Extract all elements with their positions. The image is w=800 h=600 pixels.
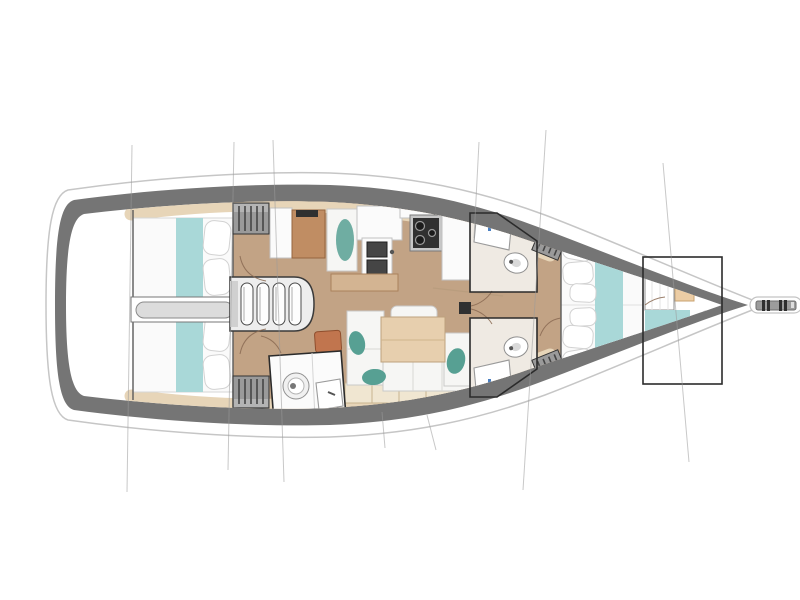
nav-seat-cushion [336, 219, 354, 261]
boat-floorplan-diagram [0, 0, 800, 600]
stove-burner [416, 222, 425, 231]
galley-faucet [390, 250, 394, 254]
sink-basin [367, 242, 387, 257]
pillow [570, 283, 597, 302]
pillow [202, 220, 231, 257]
pillow [570, 307, 597, 326]
step-tread [257, 283, 269, 325]
boat-floorplan-page [0, 0, 800, 600]
nav-cabinet [270, 208, 292, 258]
galley-counter-left [357, 206, 402, 240]
aft-port-berth-runner [176, 218, 203, 298]
bathroom-sink [316, 379, 343, 410]
ottoman [314, 330, 341, 353]
pillow [202, 258, 232, 297]
stove-burner [416, 236, 425, 245]
chart-table-instruments [296, 210, 318, 217]
chart-table [292, 210, 325, 258]
aft-starboard-berth-runner [176, 312, 203, 392]
bowsprit [750, 297, 800, 313]
aft-port-cabin [133, 218, 233, 298]
mast-post [459, 302, 471, 314]
pillow [562, 261, 594, 286]
galley-bar [331, 274, 398, 291]
step-tread [289, 283, 301, 325]
pillow [562, 325, 594, 350]
sink-basin [367, 260, 387, 275]
pillow [202, 354, 231, 391]
companionway-steps [230, 277, 314, 331]
interior-layout [131, 192, 719, 422]
hanging-locker [233, 203, 269, 234]
engine-compartment [131, 297, 233, 322]
step-tread [241, 283, 253, 325]
aft-starboard-cabin [133, 312, 233, 392]
hanging-locker [233, 376, 269, 408]
stove-burner [429, 230, 436, 237]
